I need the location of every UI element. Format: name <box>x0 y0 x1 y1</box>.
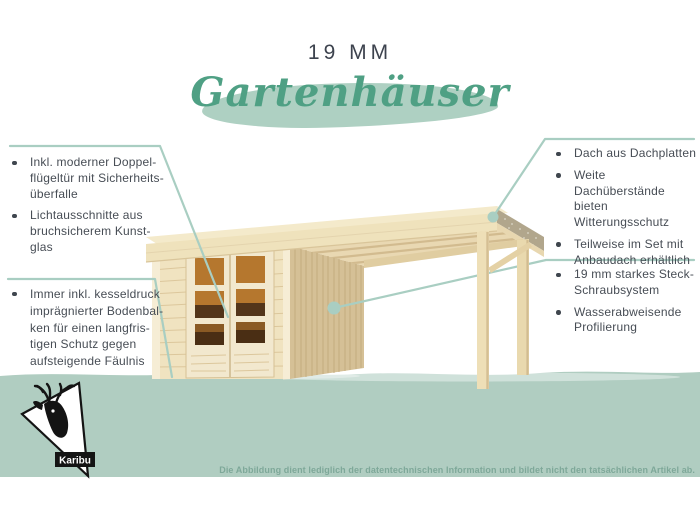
logo-brand-text: Karibu <box>59 456 91 467</box>
ground-band <box>0 372 700 477</box>
feature-item: 19 mm starkes Steck- Schraubsystem <box>552 267 698 299</box>
feature-text: Immer inkl. kesseldruck imprägnierter Bo… <box>30 287 163 368</box>
feature-text: Wasserabweisende Profilierung <box>574 305 681 335</box>
feature-text: 19 mm starkes Steck- Schraubsystem <box>574 267 694 297</box>
feature-item: Weite Dachüberstände bieten Witterungssc… <box>552 168 698 231</box>
size-label: 19 MM <box>0 41 700 65</box>
feature-text: Weite Dachüberstände bieten Witterungssc… <box>574 168 669 229</box>
bullet-icon <box>556 173 561 178</box>
product-infographic: Karibu 19 MM Gartenhäuser Inkl. moderner… <box>0 0 700 525</box>
callout-group-right-top: Dach aus Dachplatten Weite Dachüberständ… <box>552 146 698 275</box>
feature-item: Wasserabweisende Profilierung <box>552 305 698 337</box>
feature-item: Lichtausschnitte aus bruchsicherem Kunst… <box>8 208 178 255</box>
door-window-shadow <box>195 332 224 345</box>
door-window-shadow <box>236 303 265 316</box>
callout-group-left-bottom: Immer inkl. kesseldruck imprägnierter Bo… <box>8 286 180 376</box>
disclaimer-text: Die Abbildung dient lediglich der datent… <box>135 465 695 475</box>
callout-group-left-top: Inkl. moderner Doppel- flügeltür mit Sic… <box>8 155 178 262</box>
feature-item: Immer inkl. kesseldruck imprägnierter Bo… <box>8 286 180 370</box>
corner-trim-right <box>283 246 290 380</box>
feature-text: Lichtausschnitte aus bruchsicherem Kunst… <box>30 208 151 254</box>
bullet-icon <box>12 214 17 219</box>
bullet-icon <box>556 273 561 278</box>
bullet-icon <box>12 292 17 297</box>
feature-item: Dach aus Dachplatten <box>552 146 698 162</box>
callout-dot-roof <box>488 212 499 223</box>
door-window-shadow <box>195 305 224 318</box>
canopy-posts <box>477 231 532 389</box>
feature-text: Inkl. moderner Doppel- flügeltür mit Sic… <box>30 155 164 201</box>
double-door <box>186 245 274 378</box>
title-block: Gartenhäuser <box>0 70 700 130</box>
feature-item: Teilweise im Set mit Anbaudach erhältlic… <box>552 237 698 269</box>
door-window-shadow <box>236 330 265 343</box>
door-window-pane <box>236 256 265 283</box>
feature-item: Inkl. moderner Doppel- flügeltür mit Sic… <box>8 155 178 202</box>
callout-dot-wall <box>328 302 341 315</box>
bullet-icon <box>556 152 561 157</box>
feature-text: Teilweise im Set mit Anbaudach erhältlic… <box>574 237 690 267</box>
bullet-icon <box>12 161 17 166</box>
callout-group-right-bottom: 19 mm starkes Steck- Schraubsystem Wasse… <box>552 267 698 342</box>
feature-text: Dach aus Dachplatten <box>574 146 696 160</box>
bullet-icon <box>556 310 561 315</box>
page-title: Gartenhäuser <box>190 70 509 116</box>
bullet-icon <box>556 242 561 247</box>
